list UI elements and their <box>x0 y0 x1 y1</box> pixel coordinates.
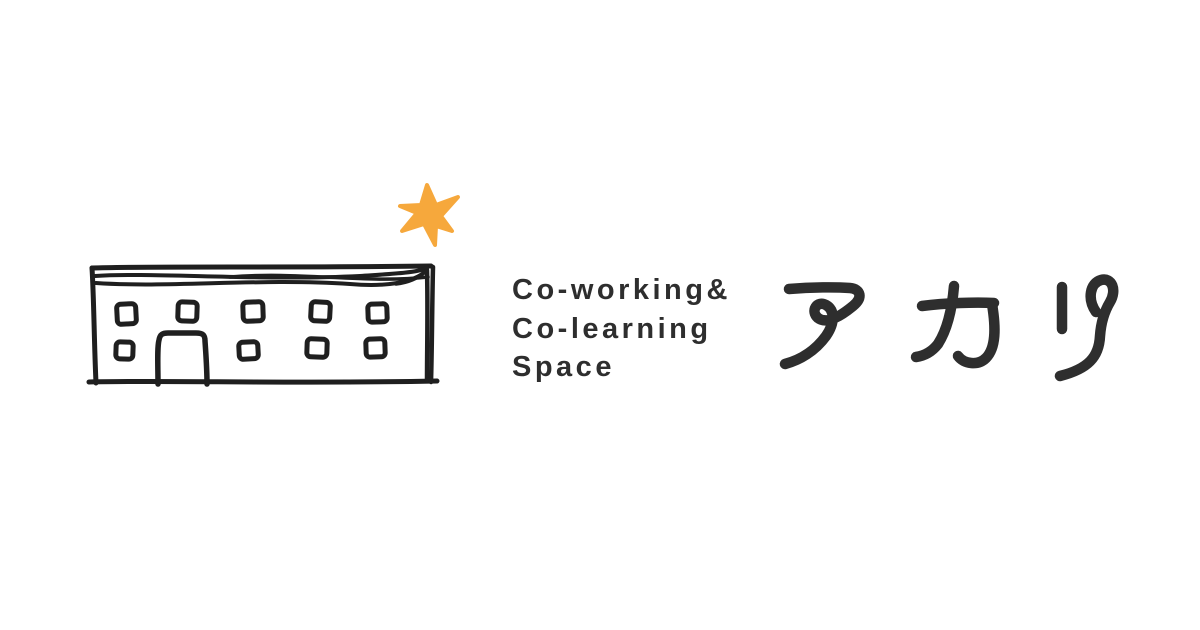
brand-logotype: アカリ <box>770 258 1130 388</box>
building-outline <box>89 266 437 383</box>
glyph-ka <box>916 286 994 363</box>
glyph-ri <box>1060 280 1113 376</box>
tagline-line-2: Co-learning <box>512 310 731 349</box>
tagline: Co-working& Co-learning Space <box>512 271 731 387</box>
building-star-svg <box>80 170 470 395</box>
building-illustration <box>80 170 470 395</box>
star-icon <box>400 185 458 245</box>
door <box>158 333 207 384</box>
tagline-line-1: Co-working& <box>512 271 731 310</box>
brand-svg <box>770 258 1130 388</box>
windows-top-row <box>116 302 387 325</box>
glyph-a <box>785 287 859 364</box>
tagline-line-3: Space <box>512 348 731 387</box>
logo-banner: Co-working& Co-learning Space アカリ <box>0 0 1200 630</box>
